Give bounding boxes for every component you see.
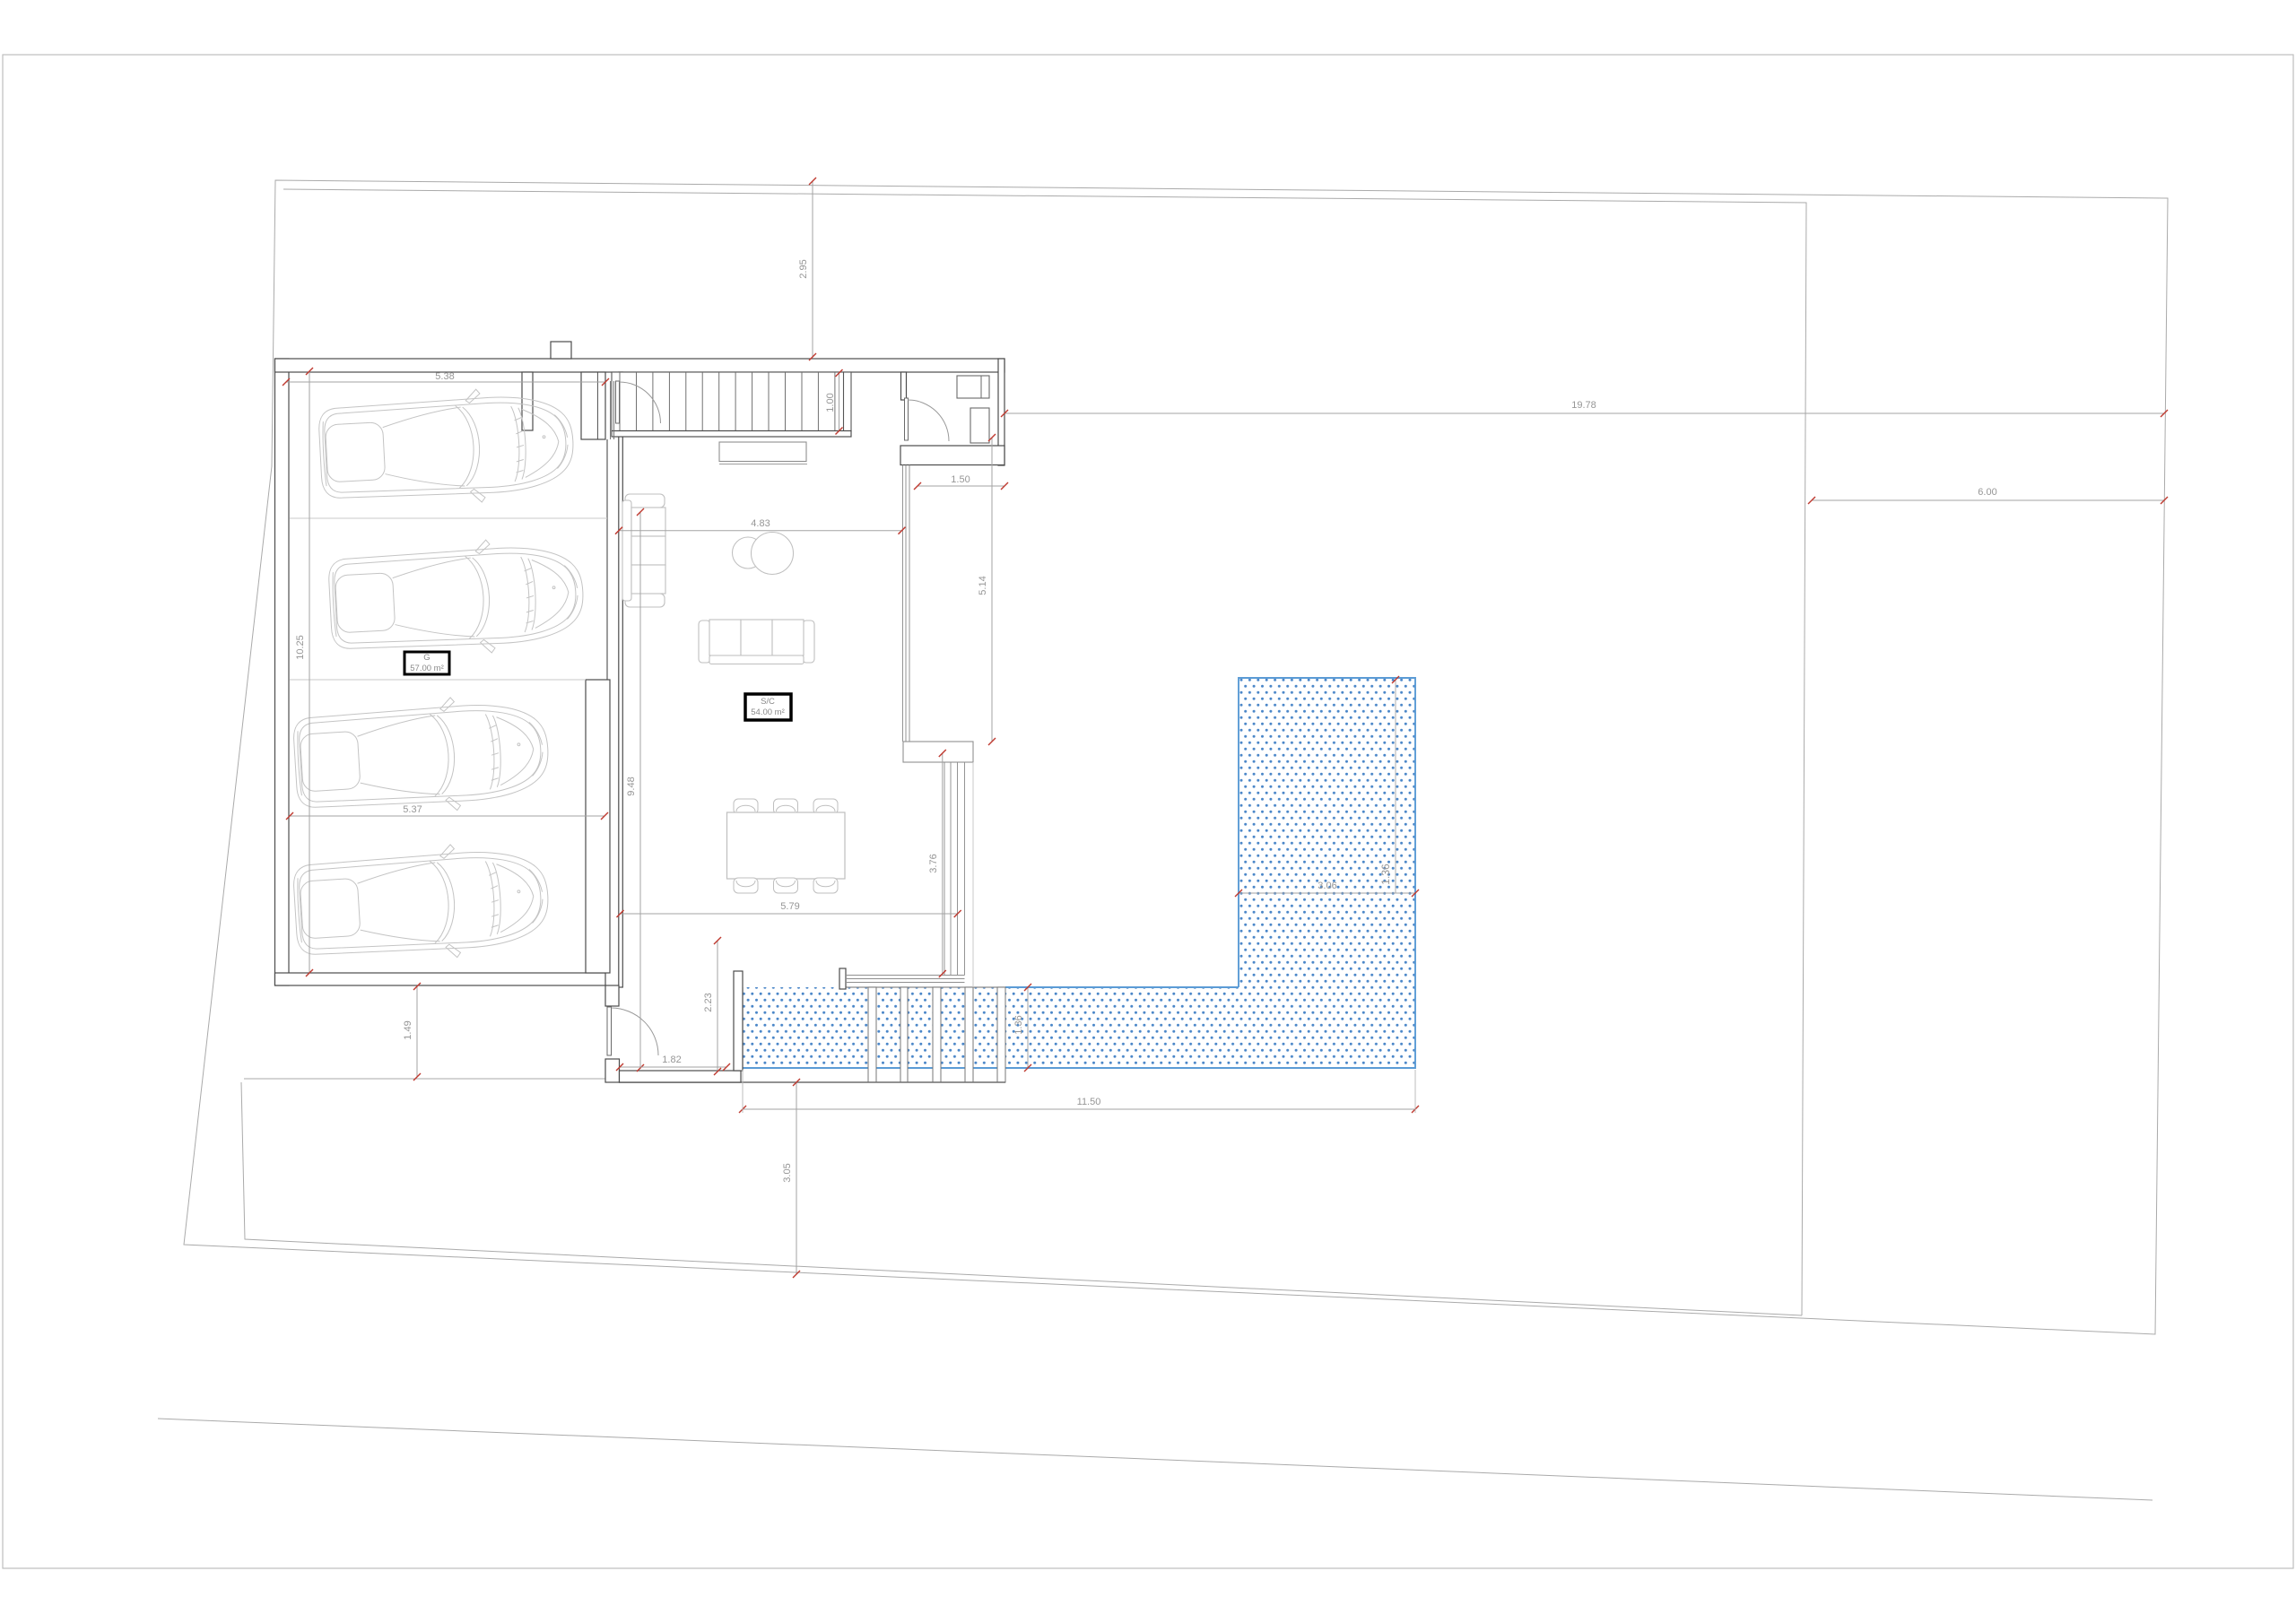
svg-text:11.50: 11.50 (1077, 1097, 1101, 1107)
svg-text:10.25: 10.25 (295, 635, 306, 660)
svg-text:4.83: 4.83 (751, 518, 770, 529)
svg-text:5.14: 5.14 (978, 576, 988, 595)
svg-text:19.78: 19.78 (1571, 400, 1596, 411)
svg-text:3.76: 3.76 (928, 854, 939, 872)
svg-text:1.82: 1.82 (662, 1055, 681, 1065)
svg-text:1.49: 1.49 (403, 1020, 413, 1039)
svg-text:5.38: 5.38 (435, 371, 454, 382)
svg-text:2.23: 2.23 (703, 993, 714, 1011)
svg-text:54.00 m²: 54.00 m² (751, 707, 785, 717)
svg-text:57.00 m²: 57.00 m² (410, 664, 444, 673)
svg-text:1.00: 1.00 (825, 393, 836, 412)
svg-text:6.00: 6.00 (1978, 487, 1996, 498)
svg-text:1.36: 1.36 (1379, 864, 1392, 885)
svg-text:5.37: 5.37 (403, 804, 422, 815)
svg-text:3.06: 3.06 (1318, 881, 1336, 891)
svg-text:3.05: 3.05 (782, 1163, 793, 1182)
svg-text:9.48: 9.48 (626, 777, 637, 795)
svg-text:G: G (423, 653, 430, 663)
svg-text:1.50: 1.50 (951, 474, 970, 485)
svg-text:S/C: S/C (761, 697, 775, 707)
svg-text:2.95: 2.95 (798, 259, 809, 278)
svg-text:1.36: 1.36 (1013, 1015, 1024, 1034)
svg-text:5.79: 5.79 (780, 901, 799, 912)
